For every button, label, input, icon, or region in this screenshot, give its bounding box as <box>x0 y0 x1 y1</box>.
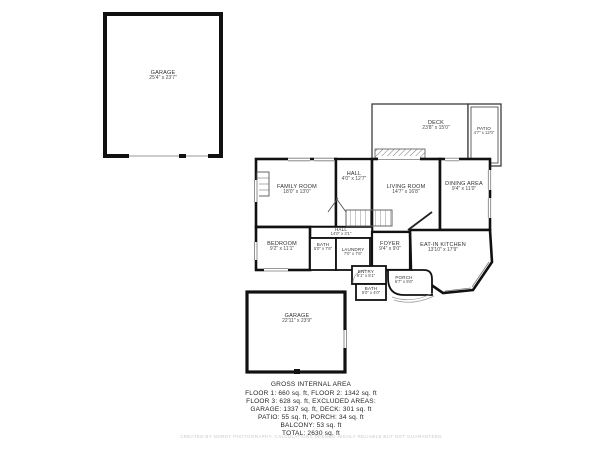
room-label-garage-detached: GARAGE 25'4" x 23'7" <box>149 70 176 82</box>
room-label-family-room: FAMILY ROOM 18'0" x 13'0" <box>277 184 317 196</box>
room-label-dining-area: DINING AREA 9'4" x 11'0" <box>445 181 483 193</box>
room-label-laundry: LAUNDRY 7'0" x 7'6" <box>342 247 365 257</box>
room-dims: 7'0" x 7'6" <box>342 252 365 257</box>
room-label-hall-upper: HALL 4'0" x 12'7" <box>342 171 367 183</box>
room-label-porch: PORCH 6'7" x 5'6" <box>395 275 413 285</box>
summary-line: FLOOR 3: 628 sq. ft, EXCLUDED AREAS: <box>245 398 377 406</box>
room-dims: 5'0" x 4'0" <box>362 291 380 296</box>
room-label-foyer: FOYER 9'4" x 9'0" <box>379 241 401 253</box>
summary-line: PATIO: 55 sq. ft, PORCH: 34 sq. ft <box>245 414 377 422</box>
room-dims: 6'7" x 5'6" <box>395 280 413 285</box>
room-dims: 22'11" x 23'9" <box>282 319 312 325</box>
room-dims: 23'8" x 15'0" <box>422 126 449 132</box>
room-dims: 6'1" x 5'1" <box>357 274 375 279</box>
room-dims: 5'0" x 7'6" <box>314 247 332 252</box>
room-label-bedroom: BEDROOM 9'2" x 11'1" <box>267 241 297 253</box>
room-dims: 14'0" x 3'1" <box>331 232 352 237</box>
room-dims: 9'4" x 11'0" <box>445 187 483 193</box>
room-label-deck: DECK 23'8" x 15'0" <box>422 120 449 132</box>
room-dims: 4'0" x 12'7" <box>342 177 367 183</box>
room-dims: 4'7" x 12'0" <box>474 131 495 136</box>
room-dims: 18'0" x 13'0" <box>277 190 317 196</box>
summary-line: FLOOR 1: 660 sq. ft, FLOOR 2: 1342 sq. f… <box>245 390 377 398</box>
room-label-eat-in-kitchen: EAT-IN KITCHEN 13'10" x 17'9" <box>420 242 466 254</box>
summary-line: GARAGE: 1337 sq. ft, DECK: 301 sq. ft <box>245 406 377 414</box>
detached-garage-outline <box>105 14 221 160</box>
room-dims: 9'4" x 9'0" <box>379 247 401 253</box>
disclaimer-text: CREATED BY NORDY PHOTOGRAPHY. CALCULATIO… <box>180 434 442 439</box>
area-summary: GROSS INTERNAL AREA FLOOR 1: 660 sq. ft,… <box>245 381 377 438</box>
room-dims: 14'7" x 16'8" <box>387 190 426 196</box>
room-dims: 25'4" x 23'7" <box>149 76 176 82</box>
room-label-hall-corridor: HALL 14'0" x 3'1" <box>331 227 352 237</box>
summary-line: BALCONY: 53 sq. ft <box>245 422 377 430</box>
room-label-patio: PATIO 4'7" x 12'0" <box>474 126 495 136</box>
staircase <box>346 210 392 226</box>
room-label-bath-small: BATH 5'0" x 4'0" <box>362 286 380 296</box>
room-dims: 9'2" x 11'1" <box>267 247 297 253</box>
room-label-garage-attached: GARAGE 22'11" x 23'9" <box>282 313 312 325</box>
summary-title: GROSS INTERNAL AREA <box>245 381 377 389</box>
room-label-bath-main: BATH 5'0" x 7'6" <box>314 242 332 252</box>
room-label-entry: ENTRY 6'1" x 5'1" <box>357 269 375 279</box>
room-label-living-room: LIVING ROOM 14'7" x 16'8" <box>387 184 426 196</box>
floorplan-page: GARAGE 25'4" x 23'7" DECK 23'8" x 15'0" … <box>0 0 600 450</box>
room-dims: 13'10" x 17'9" <box>420 248 466 254</box>
